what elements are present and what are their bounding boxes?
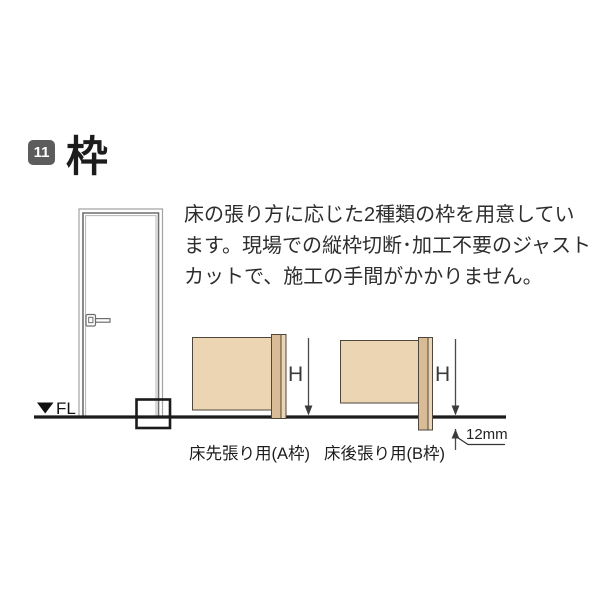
diagram-b-frame-face	[428, 338, 433, 431]
diagram-a-height-label: H	[288, 363, 303, 387]
illustration-canvas	[0, 0, 600, 600]
door-slab-edge-line	[86, 216, 156, 417]
diagram-b-offset-label: 12mm	[466, 426, 508, 443]
diagram-b-wall-panel	[341, 341, 419, 404]
diagram-a-caption: 床先張り用(A枠)	[189, 440, 310, 464]
door-frame-outer-line	[79, 209, 163, 417]
diagram-b-arrow-down-icon	[452, 406, 460, 416]
diagram-a-vertical-frame	[272, 335, 282, 419]
diagram-b-caption: 床後張り用(B枠)	[324, 440, 445, 464]
detail-callout-box	[137, 400, 171, 429]
diagram-b-height-label: H	[435, 363, 450, 387]
floor-level-label: FL	[56, 399, 76, 419]
door-handle-icon	[86, 315, 110, 327]
diagram-b-arrow-up-icon	[452, 429, 460, 439]
catalog-page: { "header": { "badge": "11", "title": "枠…	[0, 0, 600, 600]
diagram-a-wall-panel	[193, 338, 272, 411]
floor-level-marker-icon	[37, 403, 54, 414]
door-elevation	[79, 209, 170, 428]
diagram-a-arrow-down-icon	[305, 406, 313, 416]
diagram-b-vertical-frame	[419, 338, 429, 431]
diagram-a-frame-face	[281, 335, 286, 419]
